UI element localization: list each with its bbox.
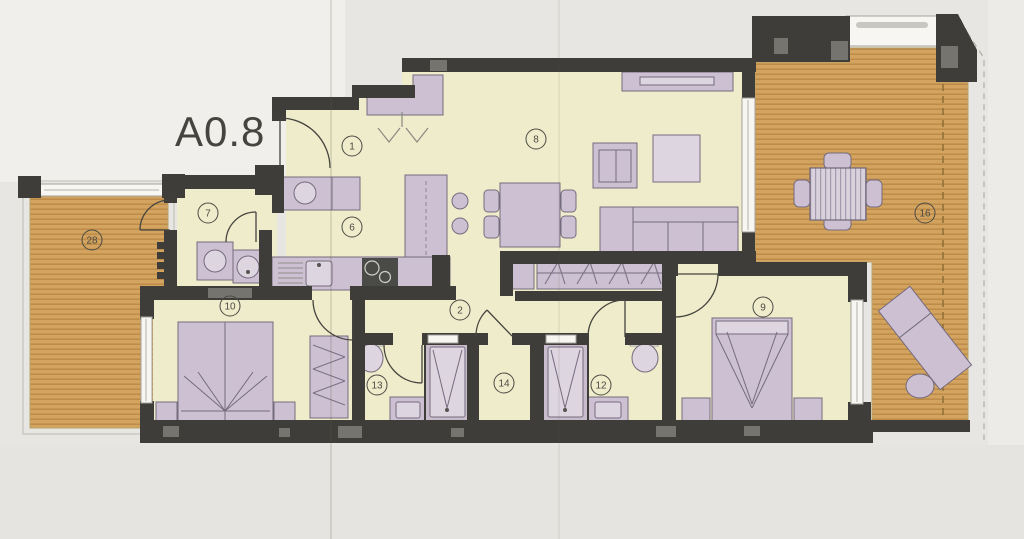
room-badge-bathroom-1: 13 bbox=[367, 375, 388, 396]
bedroom-1-furniture bbox=[156, 322, 348, 422]
dining-chair bbox=[561, 216, 576, 238]
nightstand bbox=[274, 402, 295, 422]
room-badge-terrace-west: 28 bbox=[82, 230, 103, 251]
room-badge-terrace-east: 16 bbox=[915, 203, 936, 224]
stool bbox=[452, 193, 468, 209]
dining-chair bbox=[484, 190, 499, 212]
room-badge-corridor: 2 bbox=[450, 300, 471, 321]
dining-chair bbox=[484, 216, 499, 238]
room-badge-bedroom-1: 10 bbox=[220, 296, 241, 317]
nightstand bbox=[794, 398, 822, 422]
side-table bbox=[653, 135, 700, 182]
floorplan-page: A0.8 1 2 6 7 8 9 10 12 13 14 16 28 bbox=[0, 0, 1024, 539]
outdoor-chair bbox=[794, 180, 810, 207]
room-badge-entry: 1 bbox=[342, 136, 363, 157]
room-badge-bedroom-2: 9 bbox=[753, 297, 774, 318]
lounger-side-table bbox=[906, 374, 934, 398]
outdoor-chair bbox=[824, 153, 851, 169]
outdoor-table bbox=[810, 168, 866, 220]
stool bbox=[452, 218, 468, 234]
room-badge-kitchen: 6 bbox=[342, 217, 363, 238]
built-in-wardrobe bbox=[310, 336, 348, 418]
room-badge-inner-hall: 14 bbox=[494, 373, 515, 394]
terrace-railing bbox=[846, 16, 938, 46]
outdoor-chair bbox=[866, 180, 882, 207]
toilet bbox=[632, 344, 658, 372]
floorplan-drawing bbox=[0, 0, 1024, 539]
dining-chair bbox=[561, 190, 576, 212]
nightstand bbox=[156, 402, 177, 422]
nightstand bbox=[682, 398, 710, 422]
room-badge-bathroom-2: 12 bbox=[591, 375, 612, 396]
dining-table bbox=[500, 183, 560, 247]
room-badge-utility: 7 bbox=[198, 203, 219, 224]
sofa bbox=[600, 207, 738, 258]
room-badge-living-dining: 8 bbox=[526, 129, 547, 150]
unit-title: A0.8 bbox=[175, 108, 265, 156]
